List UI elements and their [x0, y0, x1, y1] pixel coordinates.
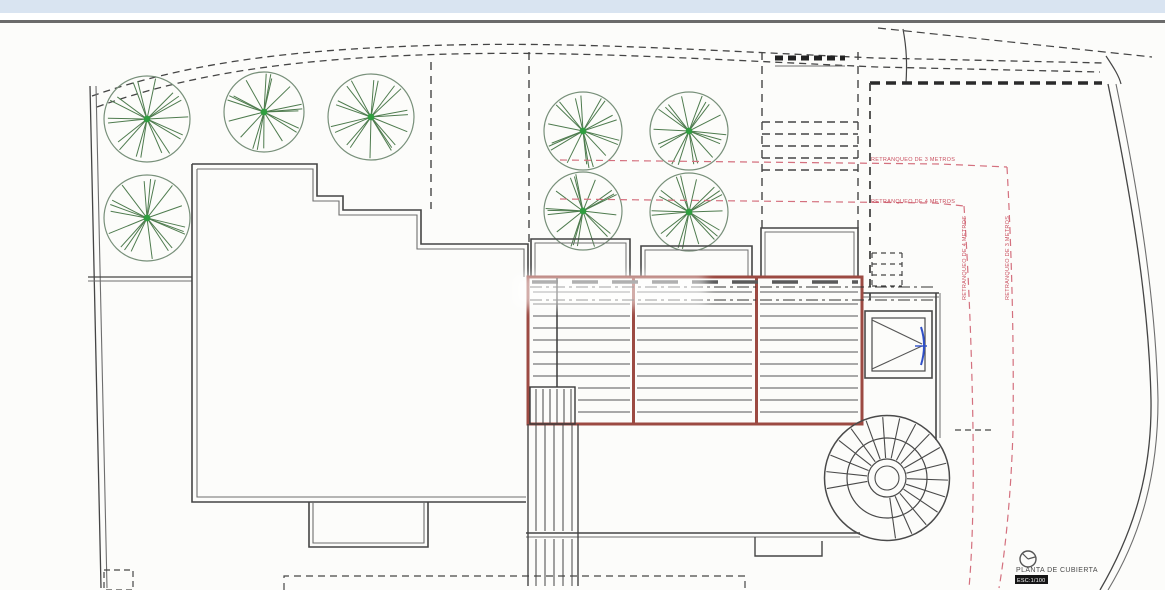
tree — [104, 175, 190, 261]
tree-branch-line — [149, 185, 173, 215]
spiral-stair-tread — [904, 448, 940, 469]
tree-branch-line — [118, 121, 145, 142]
tree-branch-line — [110, 204, 144, 216]
building-bottom-bump — [309, 502, 428, 547]
site-boundary-top-inner — [97, 53, 1100, 107]
tree-branch-line — [690, 134, 698, 163]
scale-badge: ESC:1/100 — [1017, 578, 1045, 584]
bottom-dashed-outline — [284, 576, 745, 590]
tree-trunk-dot — [686, 128, 693, 135]
tree-branch-line — [110, 100, 144, 117]
tree-branch-line — [149, 93, 173, 117]
tree-branch-line — [150, 120, 183, 135]
building-outline-inner — [197, 169, 526, 497]
tree-branch-line — [119, 121, 145, 150]
boundary-hook-right — [1106, 56, 1121, 84]
site-boundary-right-inner — [1108, 84, 1158, 590]
terrace-stair-box — [530, 387, 575, 424]
tree-trunk-dot — [580, 208, 587, 215]
tree-branch-line — [660, 132, 686, 147]
tree-branch-line — [666, 214, 687, 236]
tree-branch-line — [125, 220, 146, 250]
tree-branch-line — [567, 134, 581, 163]
roof-box-inner — [645, 250, 748, 277]
spiral-stair-tread — [830, 455, 868, 470]
tree — [224, 72, 304, 152]
tree-branch-line — [652, 211, 686, 212]
spiral-stair-circle — [875, 466, 899, 490]
tree-branch-line — [266, 87, 290, 110]
roof-box — [761, 228, 858, 277]
tree — [328, 74, 414, 160]
spiral-stair-circle — [847, 438, 927, 518]
tree-branch-line — [586, 195, 617, 210]
building-outline-outer — [192, 164, 528, 277]
tree-trunk-dot — [144, 215, 151, 222]
setback-4m-label: RETRANQUEO DE 4 METROS — [871, 199, 955, 205]
lower-wing-step — [755, 537, 822, 556]
tree-branch-line — [141, 122, 147, 158]
tree-branch-line — [690, 179, 697, 209]
tree-branch-line — [131, 221, 146, 252]
tree-branch-line — [689, 134, 693, 164]
spiral-stair-tread — [851, 429, 875, 462]
tree-branch-line — [108, 118, 144, 119]
tree-branch-line — [691, 214, 714, 239]
tree-branch-line — [559, 102, 581, 129]
tree-branch-line — [150, 219, 185, 234]
tree — [650, 92, 728, 170]
tree-branch-line — [665, 107, 687, 129]
roof-box-inner — [765, 232, 854, 277]
tree-branch-line — [556, 105, 581, 129]
tree-branch-line — [652, 212, 686, 215]
tree-branch-line — [117, 97, 144, 117]
roof-box-inner — [535, 243, 626, 277]
spiral-stair-tread — [866, 421, 880, 460]
site-boundary-left-outer — [90, 86, 101, 588]
tree-trunk-dot — [144, 116, 151, 123]
tree-branch-line — [331, 118, 368, 127]
tree-branch-line — [661, 214, 687, 234]
watermark — [512, 274, 707, 308]
tree-branch-line — [351, 81, 369, 115]
tree-branch-line — [373, 89, 401, 115]
tree-branch-line — [585, 213, 607, 236]
tree-branch-line — [658, 132, 686, 144]
skylight-diagonal — [872, 320, 922, 344]
tree-branch-line — [584, 98, 601, 128]
tree — [104, 76, 190, 162]
tree-branch-line — [654, 129, 686, 131]
tree-trunk-dot — [368, 114, 375, 121]
site-boundary-left-inner — [96, 86, 107, 588]
tree-branch-line — [692, 214, 720, 231]
roof-box — [531, 239, 630, 277]
tree-branch-line — [144, 181, 147, 215]
skylight-inner — [872, 318, 925, 371]
spiral-stair-tread — [901, 434, 929, 463]
tree-branch-line — [659, 196, 686, 210]
skylight-diagonal — [872, 346, 922, 369]
tree-branch-line — [548, 211, 580, 214]
tree-branch-line — [350, 119, 369, 147]
building-bottom-bump-inner — [313, 502, 424, 543]
boundary-hook-left — [903, 29, 907, 83]
building-outline-inner — [197, 169, 524, 277]
tree-branch-line — [149, 96, 178, 117]
plan-title: PLANTA DE CUBIERTA — [1016, 567, 1098, 574]
spiral-stair-circle — [825, 416, 950, 541]
compass-hand — [1022, 553, 1028, 559]
tree-branch-line — [576, 174, 583, 208]
tree-branch-line — [108, 119, 144, 123]
tree-branch-line — [692, 211, 723, 212]
tree-branch-line — [691, 187, 714, 210]
setback-4m-vertical-label: RETRANQUEO DE 4 METROS — [962, 216, 968, 300]
plan-geometry — [88, 28, 1158, 590]
tree-branch-line — [148, 79, 156, 116]
tree-branch-line — [150, 117, 188, 119]
tree-branch-line — [149, 220, 172, 248]
site-boundary-top-outer — [92, 44, 1104, 96]
tree-branch-line — [659, 109, 687, 129]
tree-trunk-dot — [261, 109, 268, 116]
tree-branch-line — [267, 113, 299, 128]
tree-branch-line — [150, 100, 182, 117]
spiral-stair-circle — [868, 459, 906, 497]
spiral-stair-tread — [895, 496, 912, 533]
tree-trunk-dot — [580, 128, 587, 135]
tree — [650, 173, 728, 251]
setback-3m-label: RETRANQUEO DE 3 METROS — [871, 157, 955, 163]
tree-branch-line — [373, 119, 395, 145]
spiral-stair-tread — [907, 479, 948, 480]
tree — [544, 92, 622, 170]
spiral-stair-tread — [896, 424, 915, 460]
tree-branch-line — [370, 120, 371, 158]
tree-branch-line — [586, 211, 616, 215]
setback-3m-vertical-label: RETRANQUEO DE 3 METROS — [1005, 216, 1011, 300]
site-boundary-top-right-diagonal — [878, 28, 1152, 57]
tree-branch-line — [548, 124, 580, 130]
tree-trunk-dot — [686, 209, 693, 216]
compass-hand — [1028, 557, 1035, 559]
site-boundary-right-outer — [1100, 84, 1151, 590]
tree-branch-line — [692, 195, 722, 211]
bottom-dashed-box — [104, 570, 133, 590]
tree-branch-line — [136, 122, 146, 157]
tree-branch-line — [147, 221, 152, 259]
